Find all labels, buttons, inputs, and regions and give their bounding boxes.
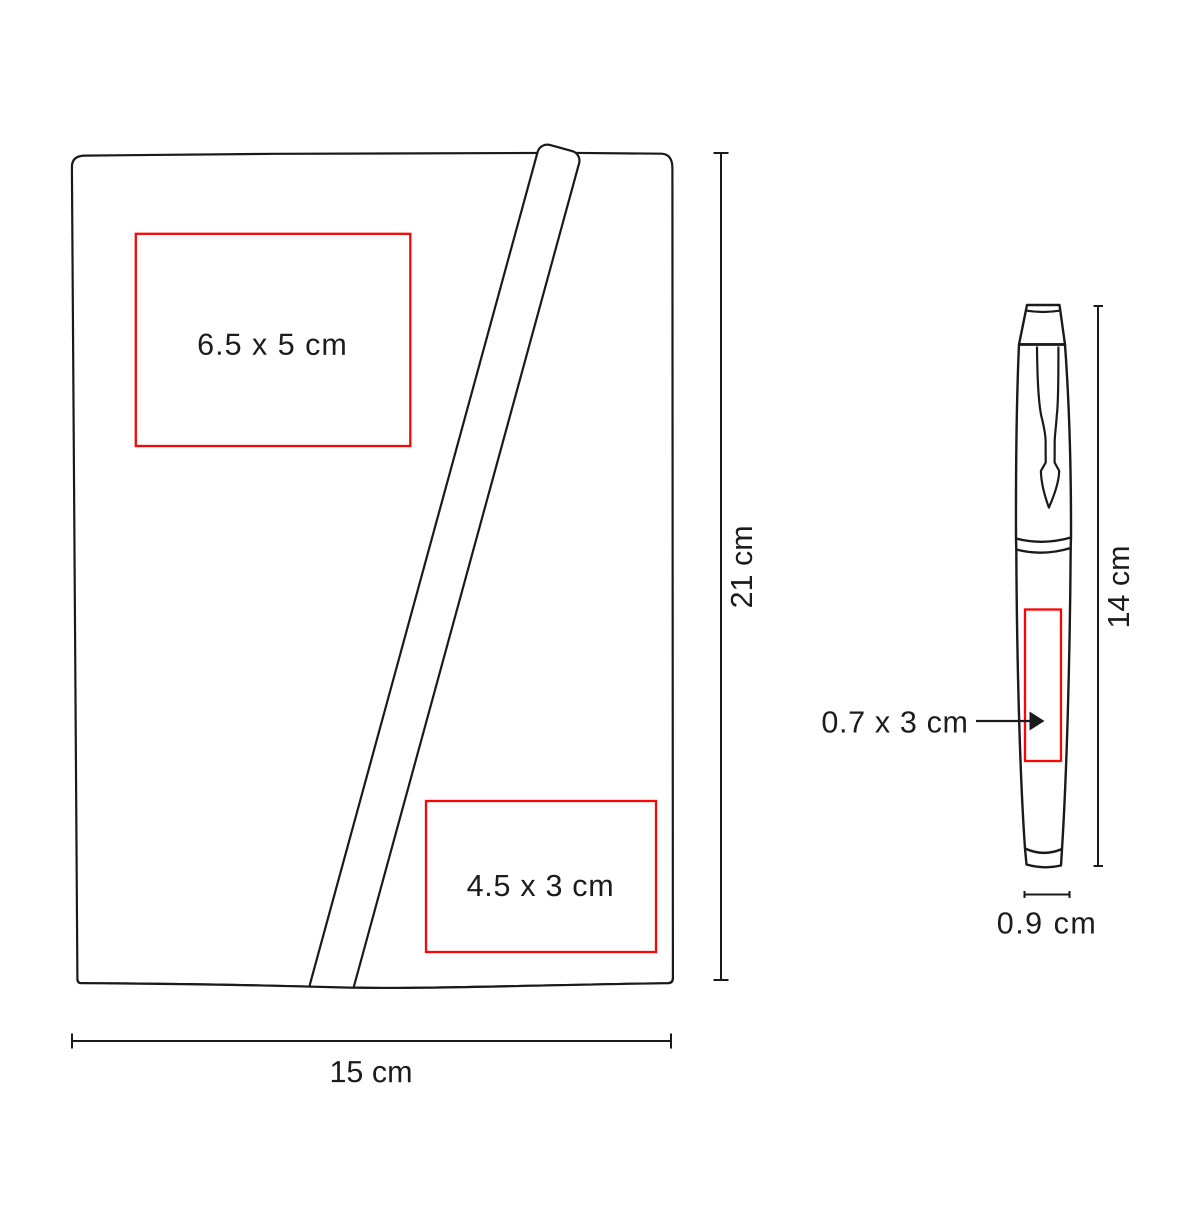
svg-text:6.5 x 5 cm: 6.5 x 5 cm: [197, 328, 348, 362]
svg-text:15 cm: 15 cm: [329, 1055, 412, 1089]
svg-text:14 cm: 14 cm: [1102, 545, 1136, 628]
svg-text:4.5 x 3 cm: 4.5 x 3 cm: [467, 869, 615, 903]
svg-text:0.7 x 3 cm: 0.7 x 3 cm: [821, 705, 968, 739]
svg-text:21 cm: 21 cm: [725, 525, 759, 608]
svg-text:0.9 cm: 0.9 cm: [997, 906, 1098, 940]
